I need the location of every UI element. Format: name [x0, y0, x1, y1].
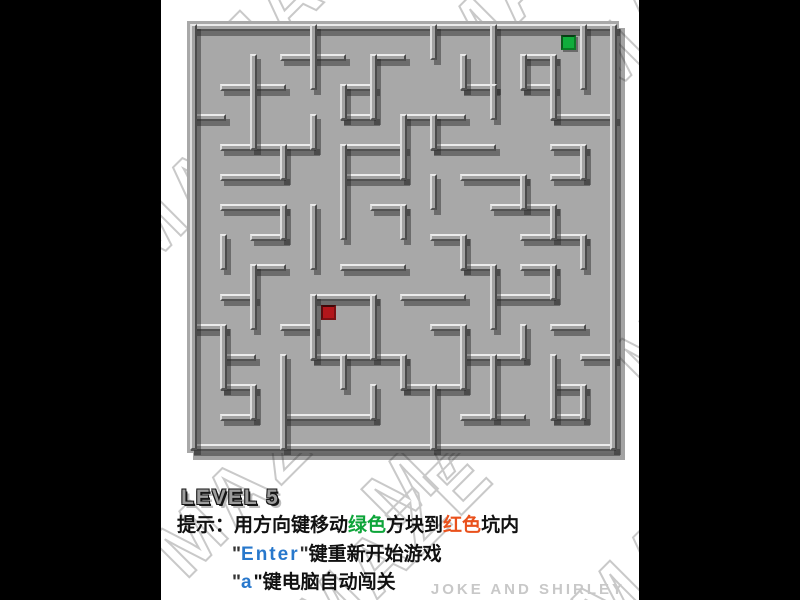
instruction-line-1: 提示：用方向键移动绿色方块到红色坑内	[177, 510, 519, 537]
instruction-text-part: 键重新开始游戏	[309, 544, 442, 565]
instruction-text-part: "	[300, 544, 309, 565]
instruction-text-part: "	[254, 572, 263, 593]
instruction-text-part: 键电脑自动闯关	[263, 572, 396, 593]
game-screen: { "app": { "footer_credit": "JOKE AND SH…	[0, 0, 800, 600]
instruction-text-part: 提示：用方向键移动	[177, 515, 348, 536]
instruction-text-part: "	[232, 572, 241, 593]
instruction-text-part: 红色	[443, 515, 481, 536]
instruction-text-part: a	[241, 572, 254, 593]
hud-text-layer: LEVEL 5 提示：用方向键移动绿色方块到红色坑内 "Enter"键重新开始游…	[0, 0, 800, 600]
instruction-text-part: "	[232, 544, 241, 565]
level-label: LEVEL 5	[181, 486, 280, 510]
instruction-text-part: Enter	[241, 544, 300, 565]
instruction-line-3: "a"键电脑自动闯关	[232, 567, 396, 594]
instruction-text-part: 绿色	[348, 515, 386, 536]
instruction-text-part: 方块到	[386, 515, 443, 536]
instruction-line-2: "Enter"键重新开始游戏	[232, 539, 442, 566]
credit-text: JOKE AND SHIRLEY	[431, 581, 625, 598]
instruction-text-part: 坑内	[481, 515, 519, 536]
